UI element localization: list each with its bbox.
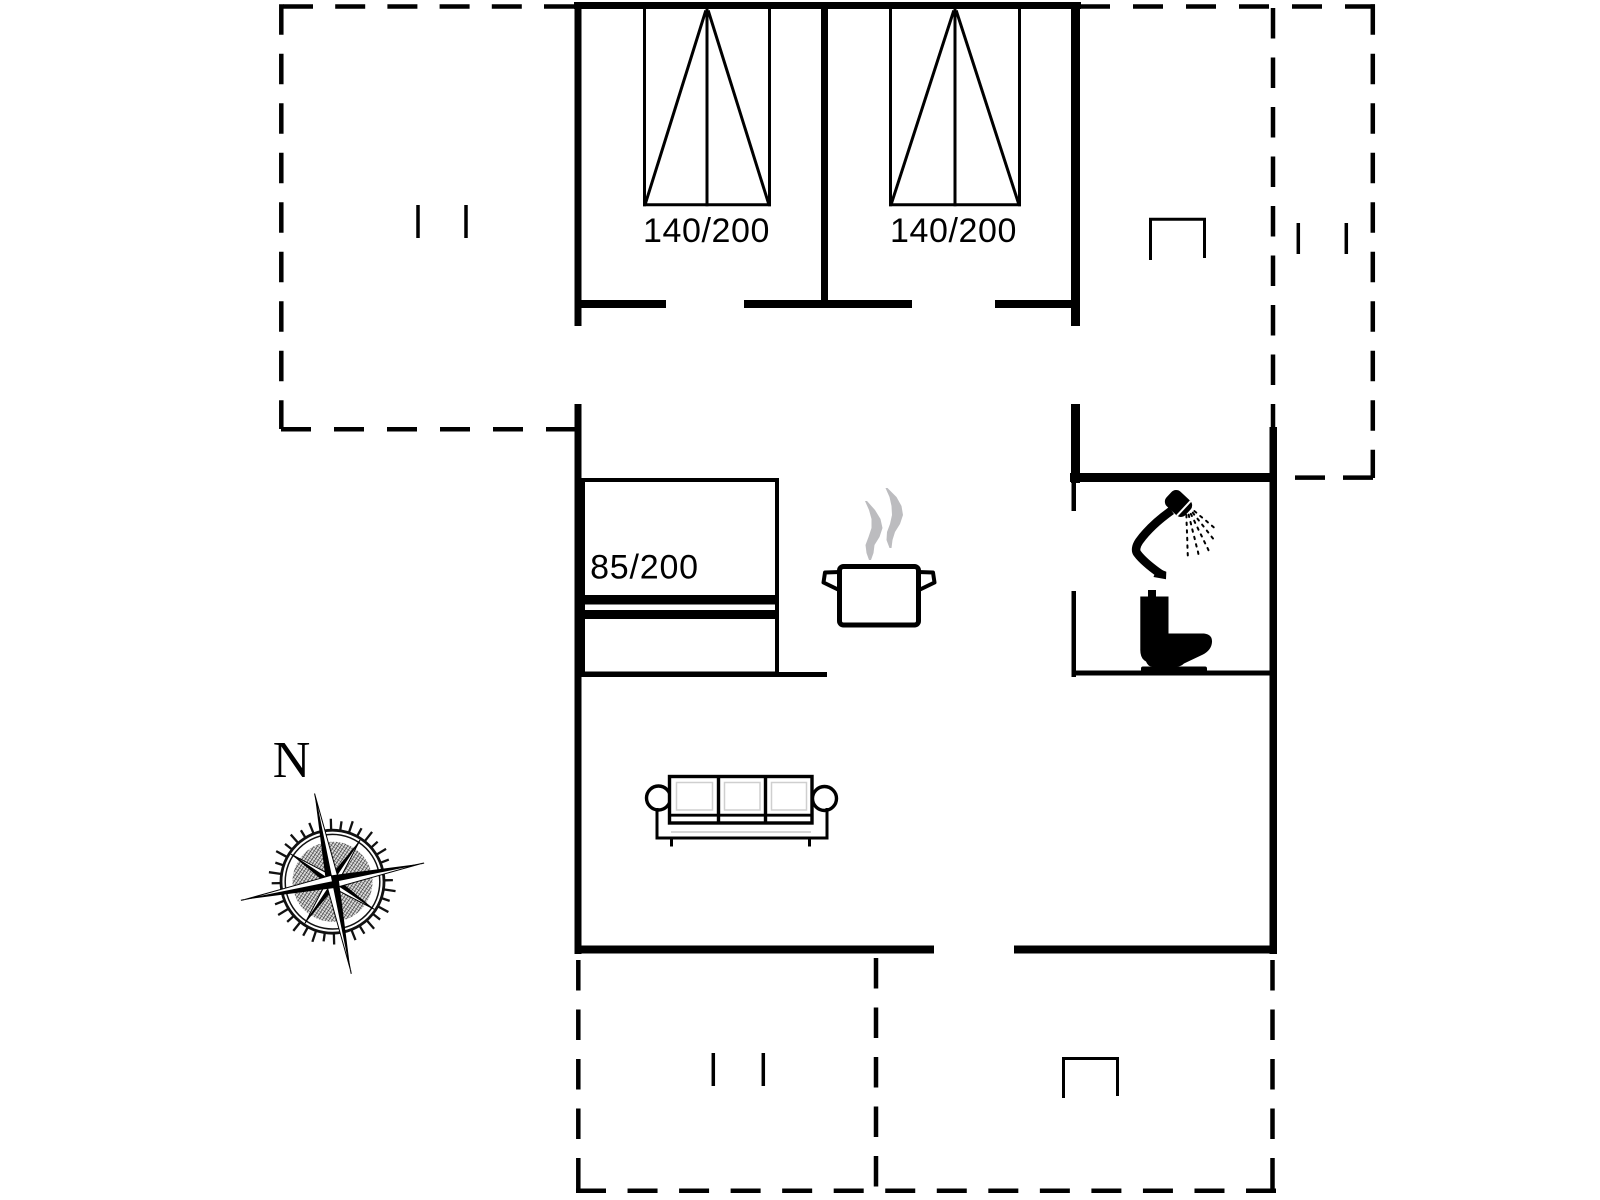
svg-text:85/200: 85/200 [590, 549, 699, 587]
svg-text:140/200: 140/200 [890, 212, 1017, 250]
svg-text:N: N [273, 732, 311, 789]
svg-text:140/200: 140/200 [643, 212, 770, 250]
